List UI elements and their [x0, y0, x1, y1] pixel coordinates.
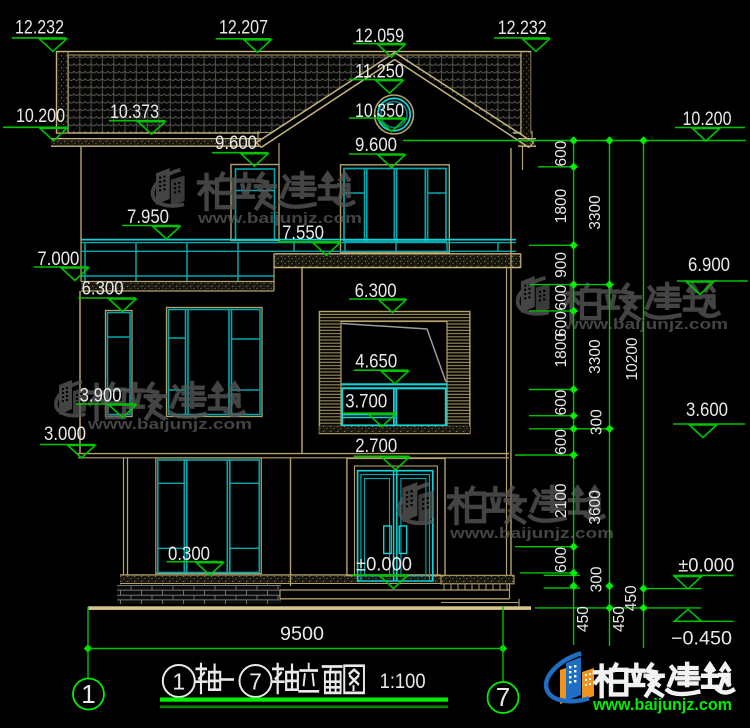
svg-text:7.550: 7.550 [282, 223, 324, 244]
svg-text:3.000: 3.000 [44, 424, 86, 445]
svg-text:7: 7 [249, 669, 262, 695]
svg-text:9.600: 9.600 [355, 135, 397, 156]
svg-text:450: 450 [575, 606, 592, 632]
svg-text:450: 450 [611, 606, 628, 632]
svg-text:3300: 3300 [587, 339, 604, 374]
svg-text:1800: 1800 [553, 188, 570, 223]
svg-text:www.baijunjz.com: www.baijunjz.com [592, 696, 732, 714]
svg-text:300: 300 [589, 409, 606, 435]
svg-text:12.232: 12.232 [15, 18, 64, 39]
svg-text:4.650: 4.650 [355, 351, 397, 372]
svg-text:300: 300 [589, 566, 606, 592]
svg-text:12.232: 12.232 [498, 18, 547, 39]
svg-text:9500: 9500 [280, 624, 324, 645]
svg-text:3600: 3600 [587, 490, 604, 525]
svg-text:600: 600 [553, 284, 570, 310]
svg-text:10200: 10200 [624, 337, 641, 380]
svg-text:12.207: 12.207 [219, 18, 268, 39]
svg-text:2100: 2100 [553, 483, 570, 518]
svg-text:±0.000: ±0.000 [678, 555, 734, 576]
svg-text:900: 900 [553, 252, 570, 278]
svg-text:3300: 3300 [587, 195, 604, 230]
svg-text:600: 600 [553, 389, 570, 415]
svg-text:600: 600 [553, 429, 570, 455]
svg-text:1800: 1800 [553, 333, 570, 368]
svg-text:www.baijunjz.com: www.baijunjz.com [87, 416, 252, 433]
svg-text:10.200: 10.200 [16, 106, 65, 127]
svg-text:9.600: 9.600 [215, 133, 257, 154]
svg-text:600: 600 [553, 546, 570, 572]
svg-text:6.300: 6.300 [82, 279, 124, 300]
svg-text:1: 1 [81, 679, 95, 709]
svg-text:2.700: 2.700 [355, 436, 397, 457]
svg-text:10.373: 10.373 [110, 102, 159, 123]
svg-text:1: 1 [172, 669, 185, 695]
svg-text:3.600: 3.600 [686, 400, 728, 421]
svg-text:7: 7 [496, 682, 510, 712]
svg-text:3.700: 3.700 [345, 392, 387, 413]
svg-text:±0.000: ±0.000 [356, 554, 412, 575]
svg-text:6.900: 6.900 [688, 255, 730, 276]
svg-text:−0.450: −0.450 [671, 629, 732, 650]
svg-text:www.baijunjz.com: www.baijunjz.com [197, 210, 362, 227]
svg-text:600: 600 [553, 140, 570, 166]
svg-text:www.baijunjz.com: www.baijunjz.com [449, 525, 614, 542]
svg-text:1:100: 1:100 [380, 670, 426, 693]
svg-text:www.baijunjz.com: www.baijunjz.com [563, 316, 728, 333]
